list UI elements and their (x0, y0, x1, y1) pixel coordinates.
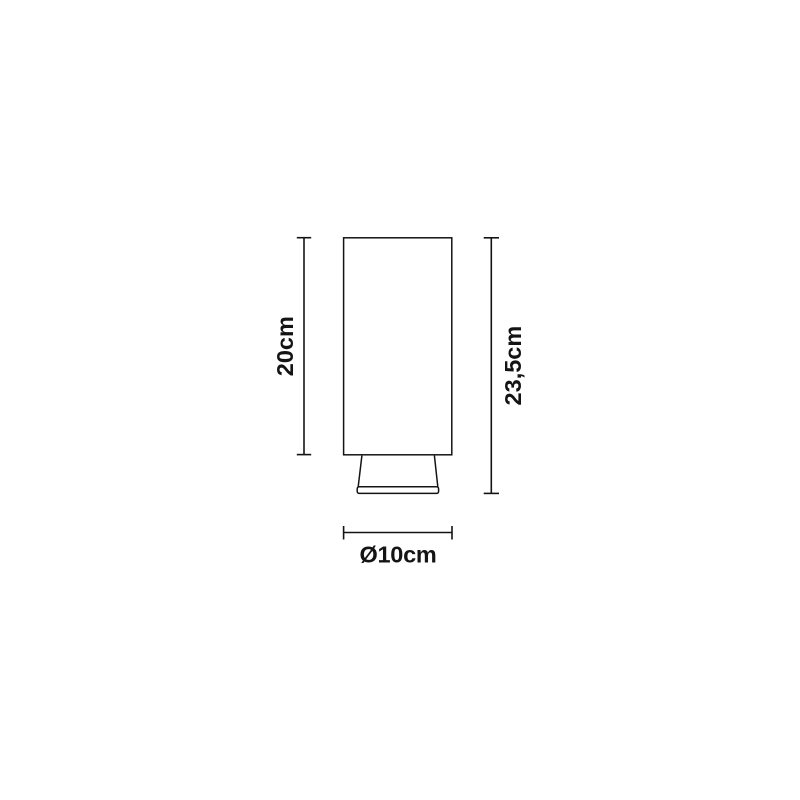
svg-text:20cm: 20cm (272, 316, 298, 376)
svg-text:Ø10cm: Ø10cm (360, 542, 437, 568)
svg-text:23,5cm: 23,5cm (500, 326, 526, 406)
